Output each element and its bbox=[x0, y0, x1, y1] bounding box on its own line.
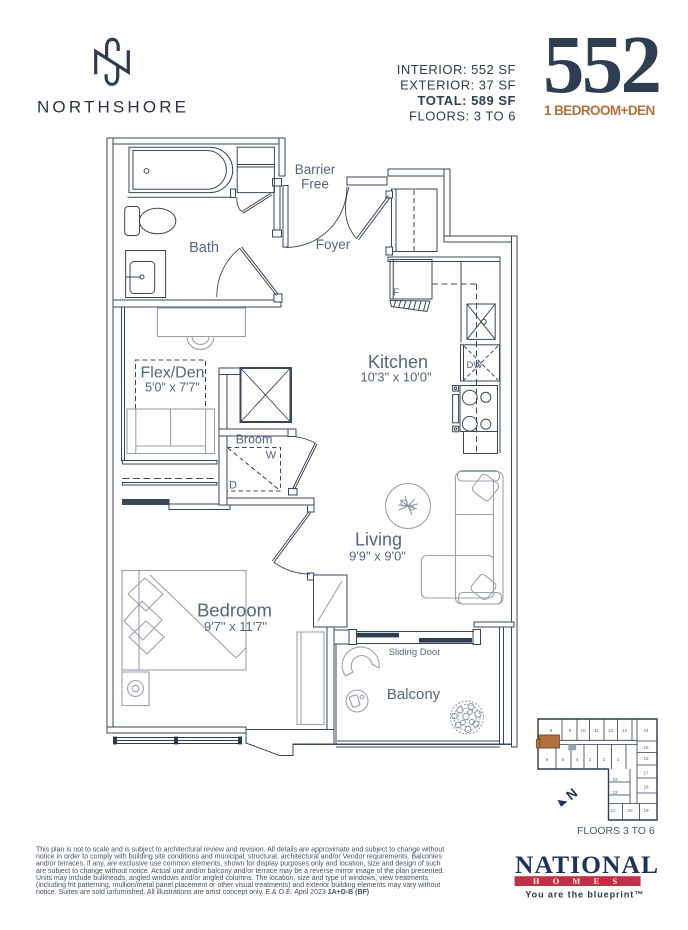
svg-text:1 BEDROOM+DEN: 1 BEDROOM+DEN bbox=[544, 103, 656, 118]
svg-text:552: 552 bbox=[543, 18, 662, 110]
svg-text:9'9" x 9'0": 9'9" x 9'0" bbox=[349, 549, 406, 564]
svg-text:FLOORS 3 TO 6: FLOORS 3 TO 6 bbox=[577, 825, 656, 837]
svg-text:and/or terraces, if any, are e: and/or terraces, if any, are exclusive u… bbox=[36, 861, 441, 868]
svg-text:2: 2 bbox=[603, 757, 606, 762]
svg-text:Sliding Door: Sliding Door bbox=[389, 647, 441, 658]
svg-text:6: 6 bbox=[546, 757, 549, 762]
svg-text:Free: Free bbox=[301, 177, 329, 192]
svg-text:notice in order to comply with: notice in order to comply with building … bbox=[36, 854, 442, 861]
svg-text:TOTAL: 589 SF: TOTAL: 589 SF bbox=[418, 93, 516, 108]
svg-text:NORTHSHORE: NORTHSHORE bbox=[37, 98, 190, 117]
svg-text:5'0" x 7'7": 5'0" x 7'7" bbox=[145, 381, 200, 395]
svg-text:Units may include bulkheads, a: Units may include bulkheads, angled wind… bbox=[36, 875, 429, 882]
svg-text:are subject to change without: are subject to change without notice. Ac… bbox=[36, 868, 444, 875]
svg-text:10: 10 bbox=[580, 728, 586, 733]
svg-text:21: 21 bbox=[610, 808, 616, 813]
svg-text:10'3" x 10'0": 10'3" x 10'0" bbox=[360, 370, 432, 385]
svg-text:Broom: Broom bbox=[236, 433, 273, 447]
svg-text:11: 11 bbox=[594, 728, 599, 733]
svg-text:3: 3 bbox=[589, 757, 592, 762]
svg-text:Foyer: Foyer bbox=[316, 237, 351, 252]
svg-text:DW: DW bbox=[467, 360, 483, 371]
svg-text:INTERIOR: 552 SF: INTERIOR: 552 SF bbox=[397, 62, 516, 77]
svg-text:You are the blueprint™: You are the blueprint™ bbox=[525, 890, 644, 900]
svg-text:8: 8 bbox=[550, 728, 553, 733]
svg-text:22: 22 bbox=[612, 790, 618, 795]
svg-text:15: 15 bbox=[643, 745, 649, 750]
svg-text:F: F bbox=[393, 288, 399, 299]
svg-text:1: 1 bbox=[617, 757, 620, 762]
svg-text:5: 5 bbox=[562, 757, 565, 762]
svg-text:Bath: Bath bbox=[189, 240, 219, 256]
svg-text:Living: Living bbox=[355, 530, 402, 550]
svg-text:(including frit patterning, mu: (including frit patterning, mullion/meta… bbox=[36, 882, 440, 889]
svg-text:D: D bbox=[229, 480, 237, 492]
svg-text:16: 16 bbox=[643, 756, 649, 761]
svg-text:NATIONAL: NATIONAL bbox=[515, 850, 658, 879]
svg-text:FLOORS: 3 TO 6: FLOORS: 3 TO 6 bbox=[409, 109, 516, 124]
svg-text:14: 14 bbox=[643, 728, 649, 733]
svg-text:Balcony: Balcony bbox=[387, 686, 441, 703]
svg-text:7: 7 bbox=[548, 740, 551, 745]
svg-text:13: 13 bbox=[622, 728, 628, 733]
svg-text:notice. Suites are sold unfurn: notice. Suites are sold unfurnished. All… bbox=[36, 889, 369, 896]
svg-text:W: W bbox=[266, 450, 277, 462]
svg-text:18: 18 bbox=[643, 785, 649, 790]
svg-text:9: 9 bbox=[569, 728, 572, 733]
svg-text:19: 19 bbox=[643, 808, 649, 813]
svg-text:Barrier: Barrier bbox=[295, 162, 336, 177]
svg-text:23: 23 bbox=[612, 777, 618, 782]
svg-text:Bedroom: Bedroom bbox=[197, 600, 272, 621]
svg-text:4: 4 bbox=[576, 757, 579, 762]
svg-text:12: 12 bbox=[608, 728, 614, 733]
svg-text:9'7" x 11'7": 9'7" x 11'7" bbox=[204, 619, 267, 634]
svg-text:20: 20 bbox=[627, 808, 633, 813]
svg-text:Flex/Den: Flex/Den bbox=[140, 365, 204, 382]
svg-text:This plan is not to scale and: This plan is not to scale and is subject… bbox=[36, 847, 444, 854]
svg-text:17: 17 bbox=[643, 771, 649, 776]
svg-text:EXTERIOR: 37 SF: EXTERIOR: 37 SF bbox=[400, 78, 516, 93]
